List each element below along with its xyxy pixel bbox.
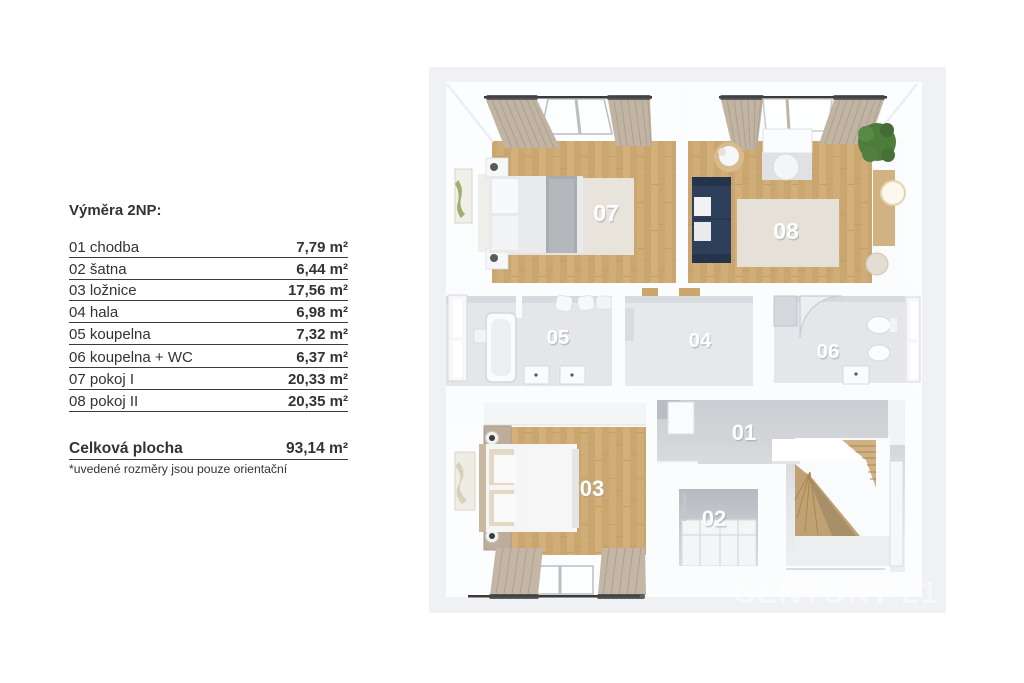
svg-text:07: 07: [593, 200, 619, 226]
svg-text:03: 03: [580, 476, 604, 501]
svg-text:CENTURY 21: CENTURY 21: [733, 575, 939, 610]
svg-text:06: 06: [817, 340, 840, 363]
svg-text:01: 01: [732, 420, 756, 445]
svg-text:08: 08: [773, 218, 799, 244]
svg-text:04: 04: [689, 329, 712, 352]
svg-text:02: 02: [702, 506, 726, 531]
svg-text:05: 05: [547, 326, 570, 349]
